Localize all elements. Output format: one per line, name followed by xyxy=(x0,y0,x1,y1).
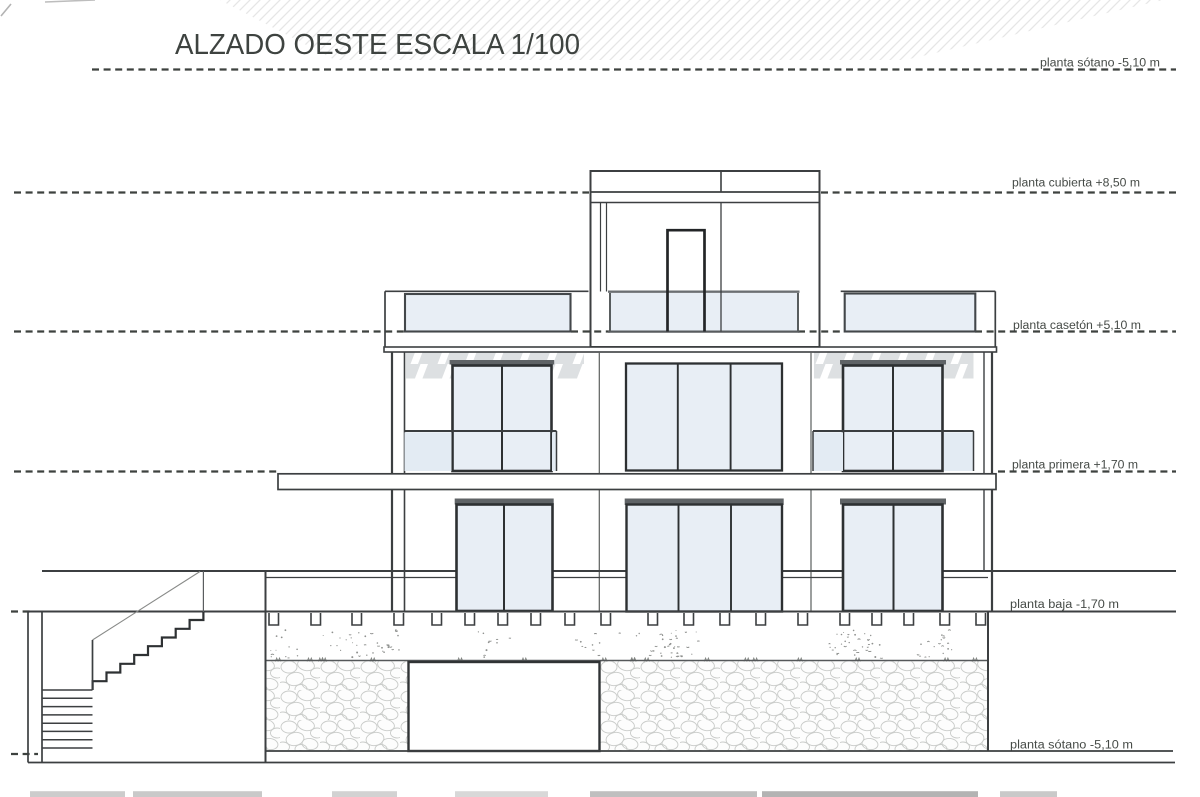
svg-text:planta casetón +5,10 m: planta casetón +5,10 m xyxy=(1013,320,1141,332)
svg-text:planta sótano -5,10 m: planta sótano -5,10 m xyxy=(1010,740,1133,752)
svg-text:ALZADO OESTE ESCALA 1/100: ALZADO OESTE ESCALA 1/100 xyxy=(175,29,580,61)
svg-text:planta sótano -5,10 m: planta sótano -5,10 m xyxy=(1040,58,1160,70)
svg-text:planta baja -1,70 m: planta baja -1,70 m xyxy=(1010,599,1119,611)
svg-text:planta cubierta +8,50 m: planta cubierta +8,50 m xyxy=(1012,178,1140,190)
svg-text:planta primera +1,70 m: planta primera +1,70 m xyxy=(1012,460,1138,472)
